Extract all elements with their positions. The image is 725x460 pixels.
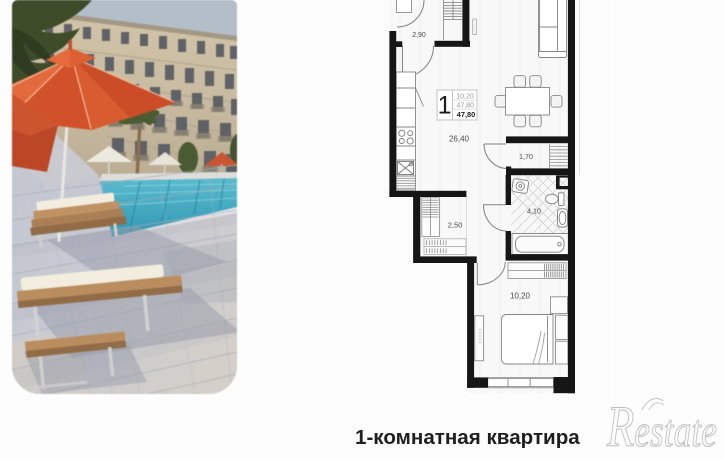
svg-text:2,90: 2,90 xyxy=(412,32,426,39)
svg-text:10,20: 10,20 xyxy=(510,292,531,301)
svg-text:4,10: 4,10 xyxy=(527,207,541,216)
svg-text:1,70: 1,70 xyxy=(519,152,533,161)
svg-text:2,50: 2,50 xyxy=(448,220,463,229)
svg-text:10,20: 10,20 xyxy=(456,94,474,101)
svg-text:1: 1 xyxy=(438,92,452,120)
svg-text:47,80: 47,80 xyxy=(457,103,475,110)
svg-text:47,80: 47,80 xyxy=(457,110,476,119)
svg-text:26,40: 26,40 xyxy=(449,135,470,144)
